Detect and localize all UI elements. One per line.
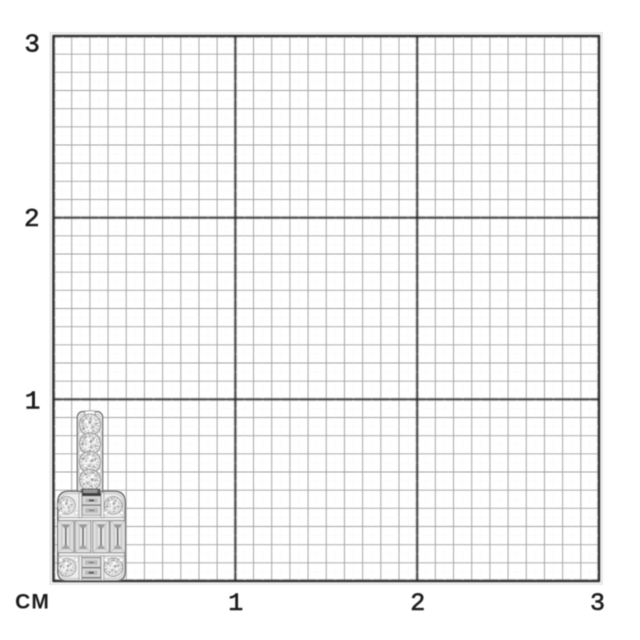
svg-text:3: 3 — [24, 29, 40, 59]
svg-text:2: 2 — [410, 589, 425, 618]
svg-text:1: 1 — [228, 589, 243, 618]
svg-text:3: 3 — [590, 589, 605, 618]
svg-text:2: 2 — [24, 204, 40, 234]
svg-text:1: 1 — [25, 386, 41, 416]
svg-text:CM: CM — [15, 590, 50, 613]
